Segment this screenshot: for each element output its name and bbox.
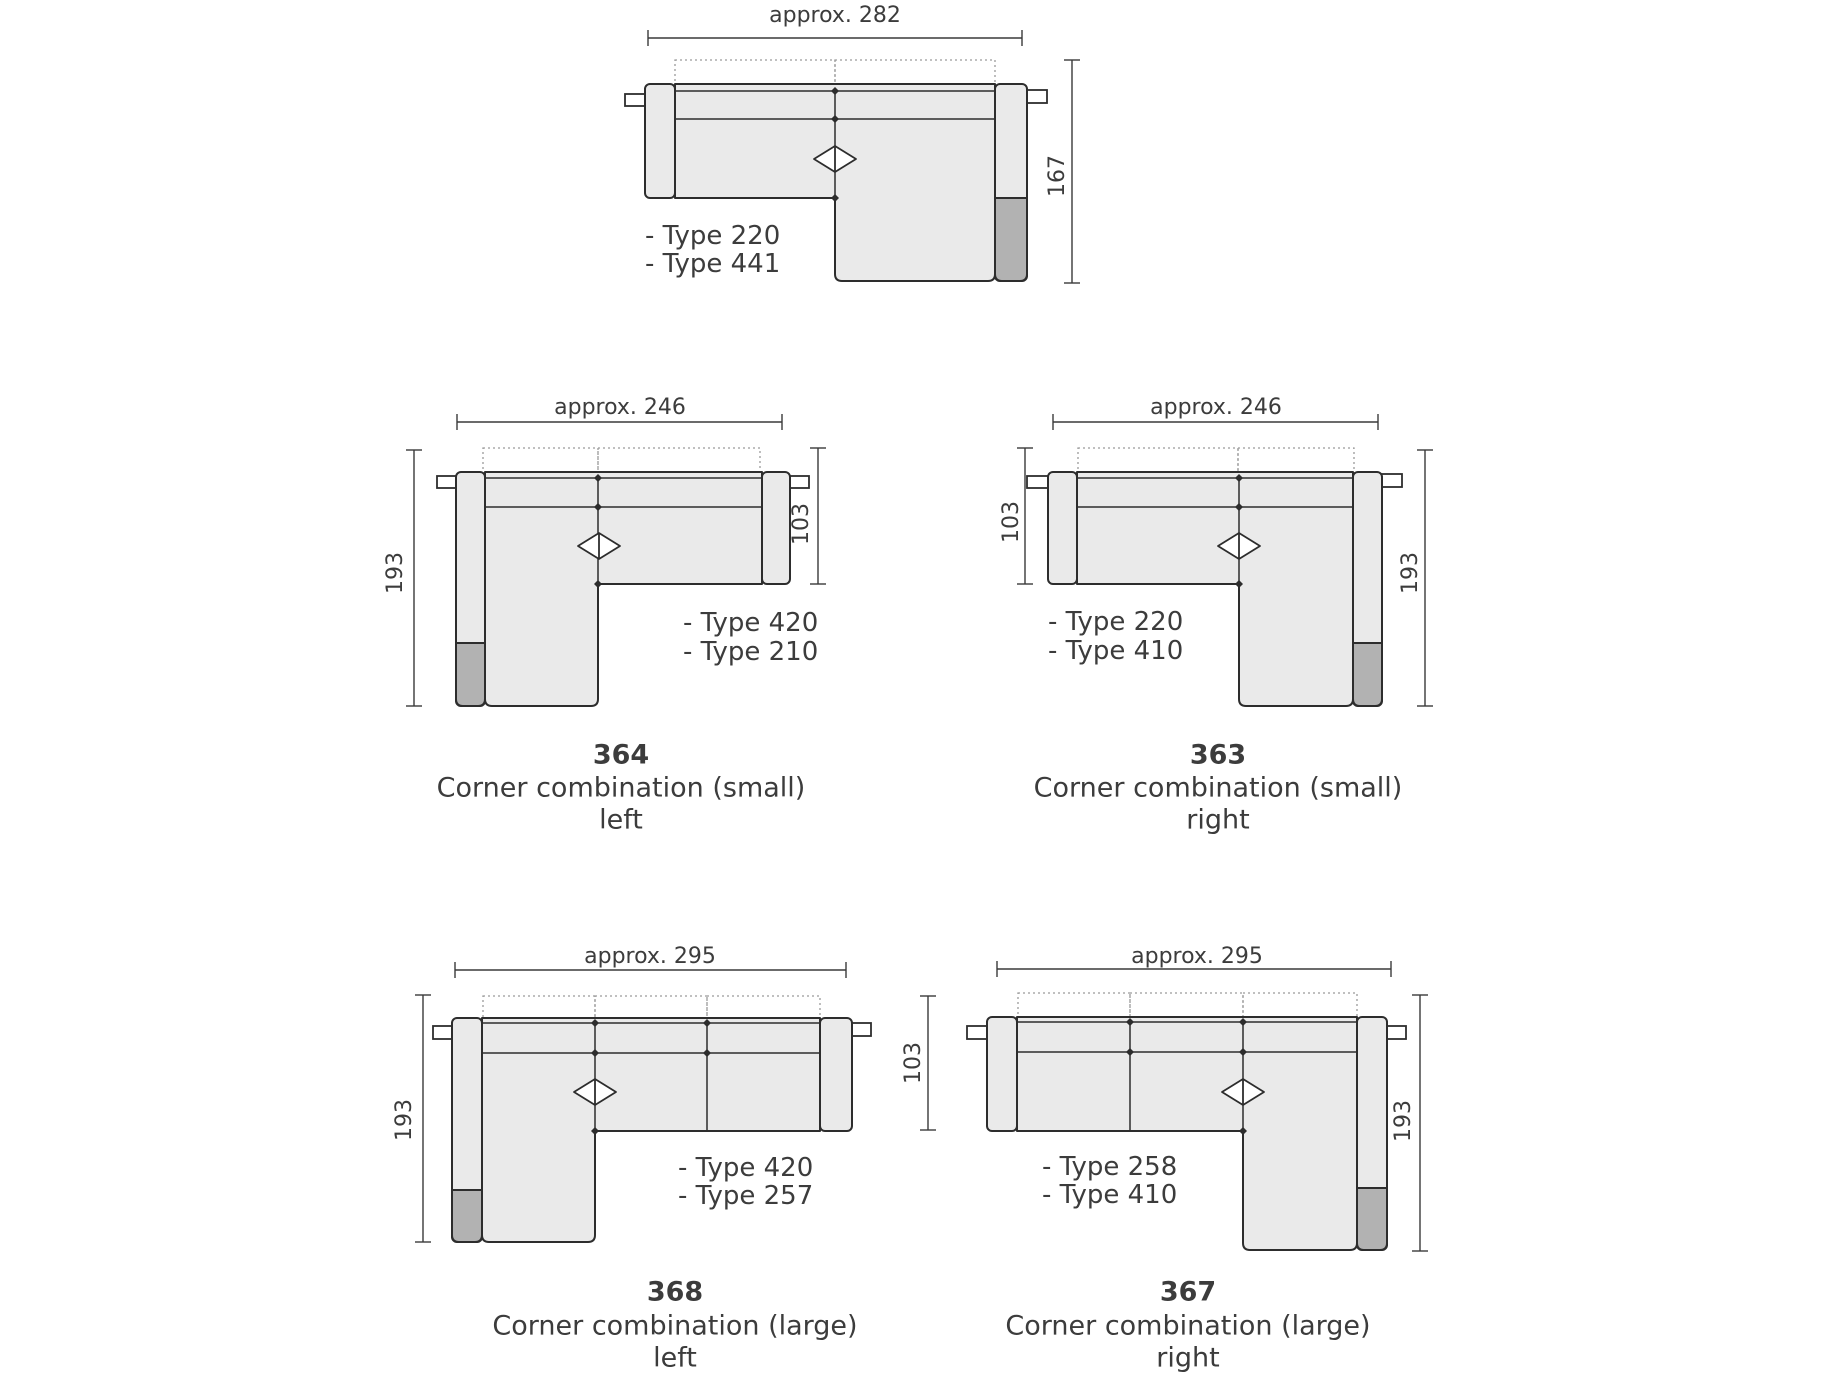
combination-side-367: right	[1156, 1345, 1219, 1372]
armrest-accent-section	[452, 1190, 482, 1242]
type-list-item: - Type 210	[683, 639, 818, 665]
type-list-item: - Type 257	[678, 1183, 813, 1209]
headrest-tab	[1381, 474, 1402, 487]
type-list-item: - Type 420	[678, 1155, 813, 1181]
dim-height-label-368: 193	[394, 1099, 416, 1141]
armrest-accent-section	[1353, 643, 1382, 706]
armrest	[762, 472, 790, 584]
combination-name-367: Corner combination (large)	[1005, 1313, 1370, 1340]
dim-width-label-364: approx. 246	[554, 397, 686, 419]
furniture-plan-sheet: approx. 282 167 - Type 220 - Type 441 ap…	[0, 0, 1844, 1383]
seat-width-guide	[1130, 993, 1243, 1019]
armrest	[820, 1018, 852, 1131]
headrest-tab	[850, 1023, 871, 1036]
headrest-tab	[1027, 476, 1048, 488]
combination-name-368: Corner combination (large)	[492, 1313, 857, 1340]
combination-code-368: 368	[647, 1279, 703, 1306]
headrest-tab	[433, 1026, 454, 1039]
combination-name-363: Corner combination (small)	[1034, 775, 1403, 802]
headrest-tab	[1385, 1026, 1406, 1039]
combination-name-364: Corner combination (small)	[437, 775, 806, 802]
dim-height-label-364: 193	[385, 552, 407, 594]
dim-height-label-363: 193	[1400, 552, 1422, 594]
armrest-accent-section	[1357, 1188, 1387, 1250]
dim-width-label-368: approx. 295	[584, 946, 716, 968]
combination-code-363: 363	[1190, 742, 1246, 769]
type-list-item: - Type 220	[1048, 609, 1183, 635]
type-list-item: - Type 441	[645, 251, 780, 277]
combination-side-368: left	[653, 1345, 697, 1372]
seat-width-guide	[1018, 993, 1130, 1019]
armrest-accent-section	[456, 643, 485, 706]
dim-height-label-top: 167	[1047, 155, 1069, 197]
type-list-item: - Type 220	[645, 223, 780, 249]
type-list-item: - Type 410	[1042, 1182, 1177, 1208]
headrest-tab	[437, 476, 458, 488]
combination-code-367: 367	[1160, 1279, 1216, 1306]
dim-width-label-367: approx. 295	[1131, 946, 1263, 968]
combination-code-364: 364	[593, 742, 649, 769]
combination-side-363: right	[1186, 807, 1249, 834]
type-list-item: - Type 410	[1048, 638, 1183, 664]
armrest-accent-section	[995, 198, 1027, 281]
seat-width-guide	[1243, 993, 1357, 1019]
headrest-tab	[625, 94, 647, 106]
type-list-item: - Type 258	[1042, 1154, 1177, 1180]
dim-depth-label-364: 103	[791, 503, 813, 545]
armrest	[645, 84, 675, 198]
headrest-tab	[1025, 90, 1047, 103]
sofa-plan-drawing	[0, 0, 1844, 1383]
dim-height-label-367: 193	[1393, 1100, 1415, 1142]
dim-width-label-top: approx. 282	[769, 5, 901, 27]
armrest	[1048, 472, 1077, 584]
headrest-tab	[788, 476, 809, 488]
headrest-tab	[967, 1026, 989, 1039]
dim-width-label-363: approx. 246	[1150, 397, 1282, 419]
combination-side-364: left	[599, 807, 643, 834]
dim-depth-label-367: 103	[903, 1042, 925, 1084]
dim-depth-label-363: 103	[1001, 501, 1023, 543]
armrest	[987, 1017, 1017, 1131]
type-list-item: - Type 420	[683, 610, 818, 636]
